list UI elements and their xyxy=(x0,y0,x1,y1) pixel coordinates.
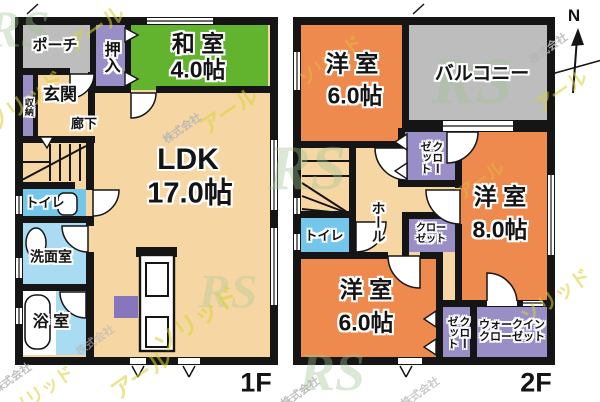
label-genkan: 玄関 xyxy=(43,86,77,104)
label-west-b: 洋 室 xyxy=(474,185,526,210)
label-floor2: 2F xyxy=(520,368,552,397)
label-walkin-closet: ウォークインクローゼット xyxy=(476,320,548,344)
label-shunou: 収納 xyxy=(23,98,33,116)
label-floor1: 1F xyxy=(240,368,272,397)
label-washitsu: 和 室 xyxy=(172,32,224,57)
north-label: N xyxy=(568,7,580,25)
label-hall: ホール xyxy=(370,201,385,243)
label-balcony: バルコニー xyxy=(435,65,530,86)
label-rouka: 廊下 xyxy=(71,117,97,131)
label-senmen: 洗面室 xyxy=(30,249,72,264)
label-toilet-1f: トイレ xyxy=(25,196,64,210)
label-toilet-2f: トイレ xyxy=(304,229,343,243)
label-west-b-size: 8.0帖 xyxy=(473,218,528,243)
label-porch: ポーチ xyxy=(32,38,77,54)
kitchen-counter xyxy=(136,247,177,351)
label-oshiire: 押入 xyxy=(101,41,118,73)
label-washitsu-size: 4.0帖 xyxy=(171,58,226,83)
label-west-c-size: 6.0帖 xyxy=(339,311,394,336)
north-arrow xyxy=(548,28,600,93)
label-closet-top: クローゼット xyxy=(418,136,442,178)
label-bath: 浴 室 xyxy=(33,313,69,330)
label-closet-bottom: クローゼット xyxy=(445,311,469,353)
label-ldk: LDK xyxy=(157,144,219,176)
label-closet-mid: クローゼット xyxy=(414,224,448,246)
dining-block xyxy=(114,296,138,318)
label-west-a-size: 6.0帖 xyxy=(328,84,383,109)
label-west-c: 洋 室 xyxy=(340,278,392,303)
label-west-a: 洋 室 xyxy=(326,52,378,77)
label-ldk-size: 17.0帖 xyxy=(147,178,232,209)
floorplan-image: RS RS RS RS RS アール ソリッド アール ソリッド アール ソリッ… xyxy=(0,0,600,402)
